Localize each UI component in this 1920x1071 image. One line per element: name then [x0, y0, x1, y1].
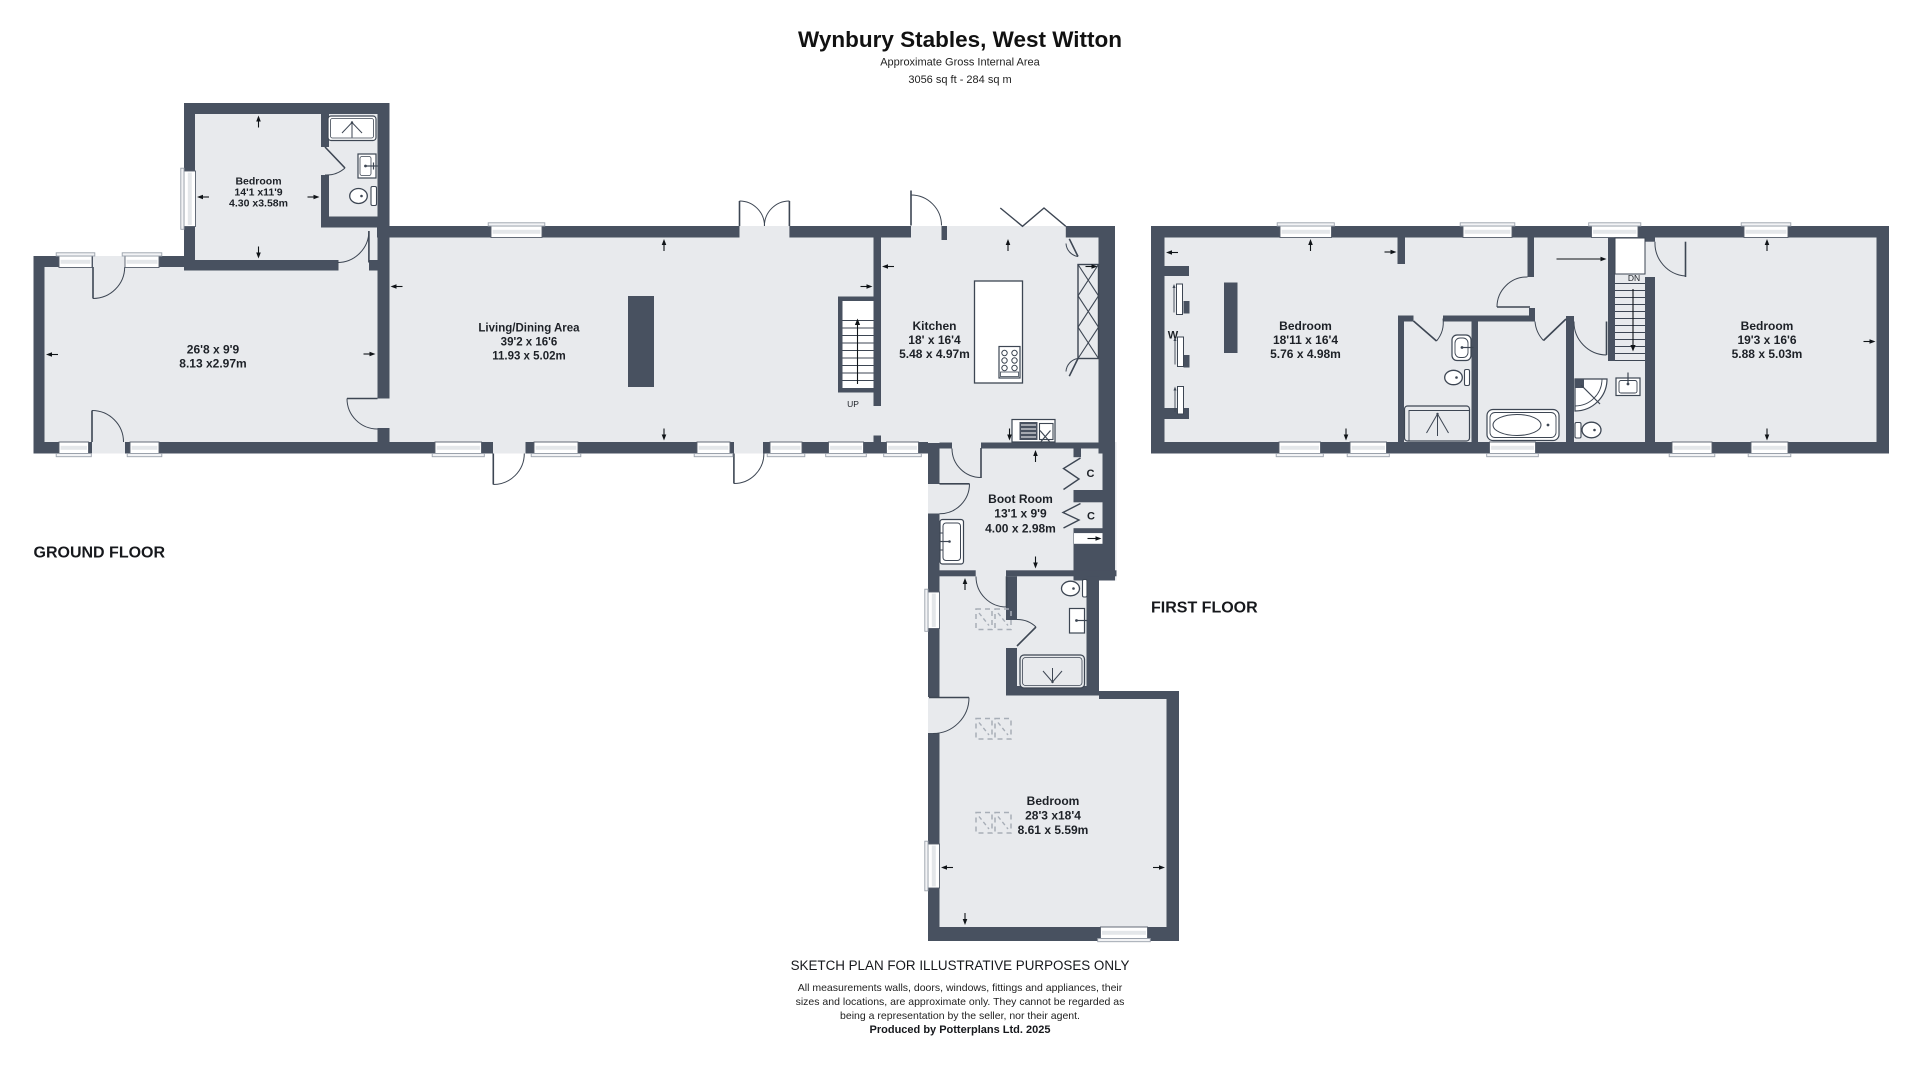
svg-text:26'8 x 9'98.13 x2.97m: 26'8 x 9'98.13 x2.97m	[179, 343, 246, 371]
svg-text:W: W	[1168, 330, 1179, 342]
svg-text:All measurements walls, doors,: All measurements walls, doors, windows, …	[796, 982, 1125, 1022]
svg-text:GROUND FLOOR: GROUND FLOOR	[34, 545, 166, 562]
svg-text:Bedroom19'3 x 16'65.88 x 5.03m: Bedroom19'3 x 16'65.88 x 5.03m	[1732, 319, 1803, 361]
svg-text:Bedroom18'11 x 16'45.76 x 4.98: Bedroom18'11 x 16'45.76 x 4.98m	[1270, 319, 1341, 361]
svg-text:FIRST FLOOR: FIRST FLOOR	[1151, 600, 1258, 617]
svg-text:C: C	[1087, 511, 1095, 523]
svg-text:UP: UP	[847, 399, 859, 409]
svg-text:Wynbury Stables, West Witton: Wynbury Stables, West Witton	[798, 27, 1122, 52]
svg-text:C: C	[1087, 468, 1095, 480]
svg-text:Boot Room13'1 x 9'94.00 x 2.98: Boot Room13'1 x 9'94.00 x 2.98m	[985, 492, 1056, 535]
svg-text:Bedroom28'3 x18'48.61 x 5.59m: Bedroom28'3 x18'48.61 x 5.59m	[1018, 794, 1089, 837]
svg-text:Approximate Gross Internal Are: Approximate Gross Internal Area	[880, 57, 1040, 69]
svg-text:Bedroom14'1 x11'94.30 x3.58m: Bedroom14'1 x11'94.30 x3.58m	[229, 176, 288, 210]
svg-text:DN: DN	[1628, 273, 1640, 283]
svg-text:SKETCH PLAN FOR ILLUSTRATIVE P: SKETCH PLAN FOR ILLUSTRATIVE PURPOSES ON…	[791, 958, 1130, 973]
svg-text:Produced by Potterplans Ltd. 2: Produced by Potterplans Ltd. 2025	[870, 1024, 1051, 1036]
svg-text:3056 sq ft - 284 sq m: 3056 sq ft - 284 sq m	[908, 74, 1011, 86]
